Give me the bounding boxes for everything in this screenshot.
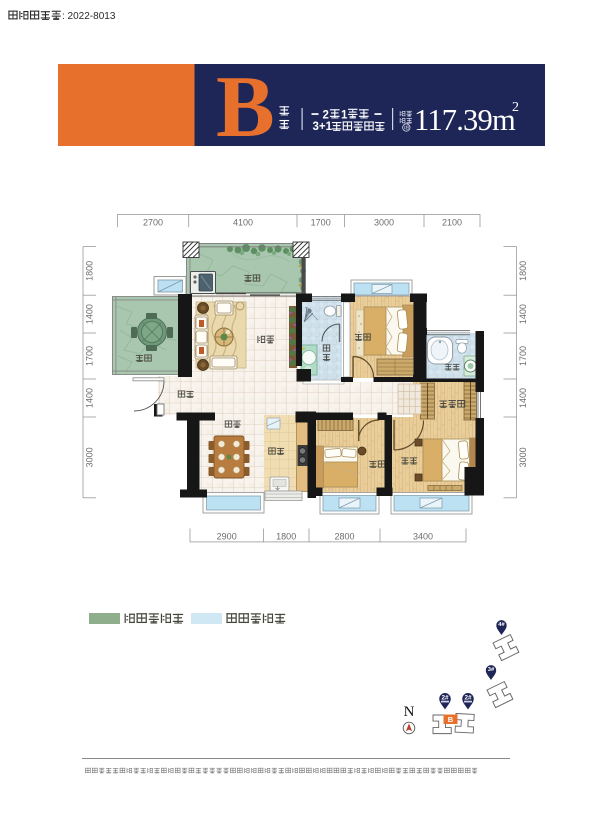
svg-text:3000: 3000 [374,218,394,228]
svg-text:1800: 1800 [276,532,296,542]
svg-text:3400: 3400 [413,532,433,542]
svg-text:2100: 2100 [442,218,462,228]
svg-text:1700: 1700 [85,346,95,366]
svg-text:1400: 1400 [518,388,528,408]
svg-text:2800: 2800 [334,532,354,542]
svg-text:4#: 4# [498,622,505,628]
svg-text:B: B [216,59,275,156]
svg-text:1700: 1700 [518,346,528,366]
svg-text:2#: 2# [464,695,472,702]
svg-text:3+1: 3+1 [313,121,333,133]
svg-text:117.39m: 117.39m [414,103,516,137]
svg-text:2: 2 [323,110,329,122]
svg-text:1: 1 [341,110,348,122]
svg-text:1400: 1400 [85,388,95,408]
svg-text:2: 2 [512,100,519,115]
svg-text:2#: 2# [441,695,449,702]
svg-text:N: N [404,704,415,720]
svg-text:3000: 3000 [85,447,95,467]
svg-text:1400: 1400 [85,304,95,324]
svg-text:3000: 3000 [518,447,528,467]
svg-text:B: B [448,715,454,724]
svg-text:2900: 2900 [217,532,237,542]
svg-text:1800: 1800 [518,261,528,281]
svg-text:4100: 4100 [233,218,253,228]
svg-text:1400: 1400 [518,304,528,324]
svg-text:: 2022-8013: : 2022-8013 [62,11,116,22]
svg-text:3#: 3# [488,667,495,673]
svg-text:2700: 2700 [143,218,163,228]
svg-text:1800: 1800 [85,261,95,281]
svg-text:1700: 1700 [311,218,331,228]
